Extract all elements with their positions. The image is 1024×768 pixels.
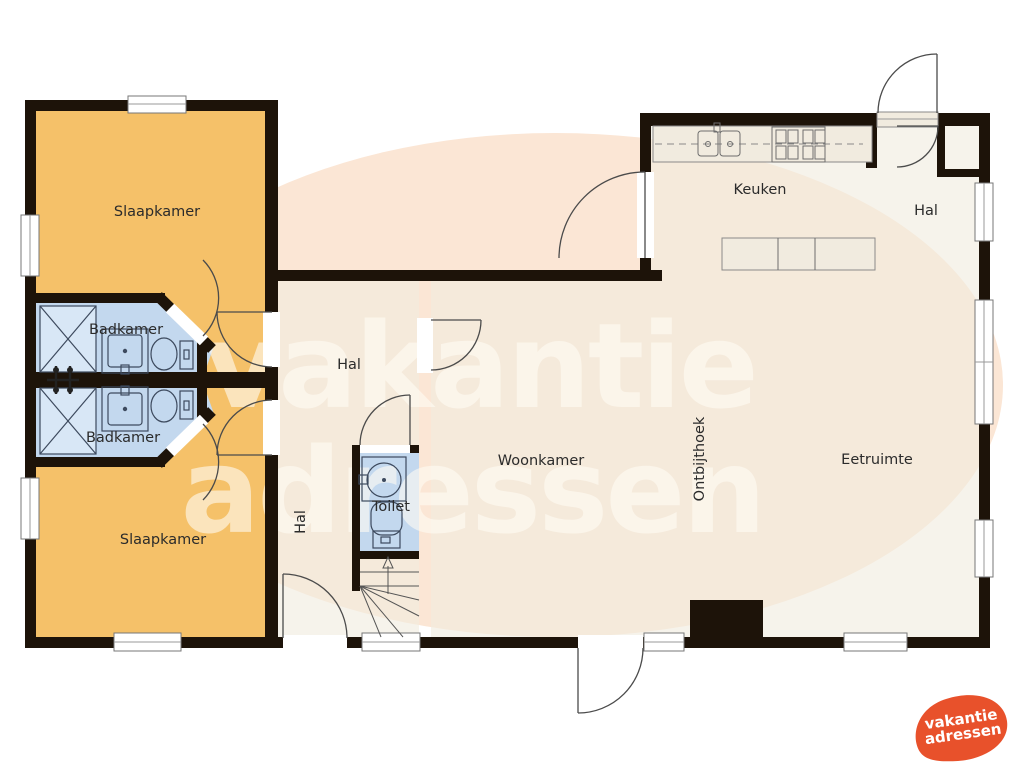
window [21, 215, 39, 276]
fireplace [690, 600, 763, 637]
shower-icon [40, 306, 96, 372]
window [975, 183, 993, 241]
window [975, 300, 993, 424]
window [21, 478, 39, 539]
window [128, 96, 186, 113]
shower-icon [40, 388, 96, 454]
window [644, 633, 684, 651]
brand-logo: vakantie adressen [916, 695, 1008, 761]
window [114, 633, 181, 651]
floor-plan-drawing: vakantie adressen [0, 0, 1024, 768]
window [362, 633, 420, 651]
kitchen-island [722, 238, 875, 270]
livingroom-back-door [578, 648, 643, 713]
floor-plan-page: vakantie adressen [0, 0, 1024, 768]
entrance-door [878, 54, 937, 113]
window [975, 520, 993, 577]
window [844, 633, 907, 651]
watermark-line-1: vakantie [204, 297, 756, 435]
